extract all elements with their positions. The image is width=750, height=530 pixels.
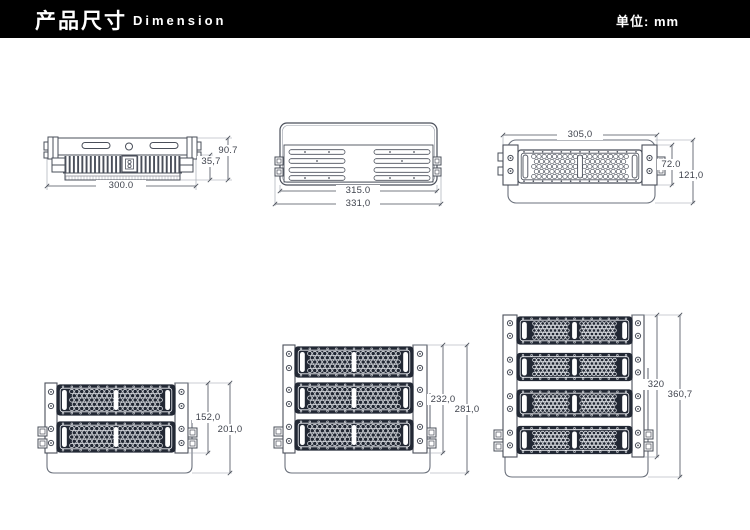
drawing-four-module: 320 360,7: [492, 308, 722, 483]
drawing-three-module: 232,0 281,0: [272, 338, 487, 480]
page-title-en: Dimension: [133, 13, 226, 28]
dim-label-front-module-height: 72.0: [657, 159, 685, 170]
dim-label-side-body-height: 35,7: [197, 156, 225, 167]
dim-label-4m-total-height: 360,7: [662, 389, 698, 400]
dim-label-back-body-width: 315.0: [336, 185, 380, 196]
dim-label-2m-total-height: 201,0: [214, 424, 246, 435]
dim-label-2m-frame-height: 152,0: [192, 412, 224, 423]
drawing-two-module: 152,0 201,0: [30, 375, 248, 480]
drawing-front-view: 305,0 72.0 121,0: [495, 126, 710, 211]
header: 产品尺寸 Dimension 单位: mm: [0, 0, 750, 38]
dim-label-side-width: 300.0: [96, 180, 146, 191]
dim-label-back-overall-width: 331,0: [336, 198, 380, 209]
dim-label-3m-total-height: 281,0: [451, 404, 483, 415]
unit-label: 单位: mm: [616, 11, 679, 30]
drawing-side-view: 300.0 35,7 90.7: [40, 122, 240, 202]
dim-label-front-width: 305,0: [557, 129, 603, 140]
page-title-zh: 产品尺寸: [35, 5, 127, 35]
dim-label-side-total-height: 90.7: [213, 145, 243, 156]
drawing-back-view: 315.0 331,0: [272, 115, 462, 215]
dim-label-front-total-height: 121,0: [674, 170, 708, 181]
page: 产品尺寸 Dimension 单位: mm 300.0 35,7 90.7 31…: [0, 0, 750, 530]
